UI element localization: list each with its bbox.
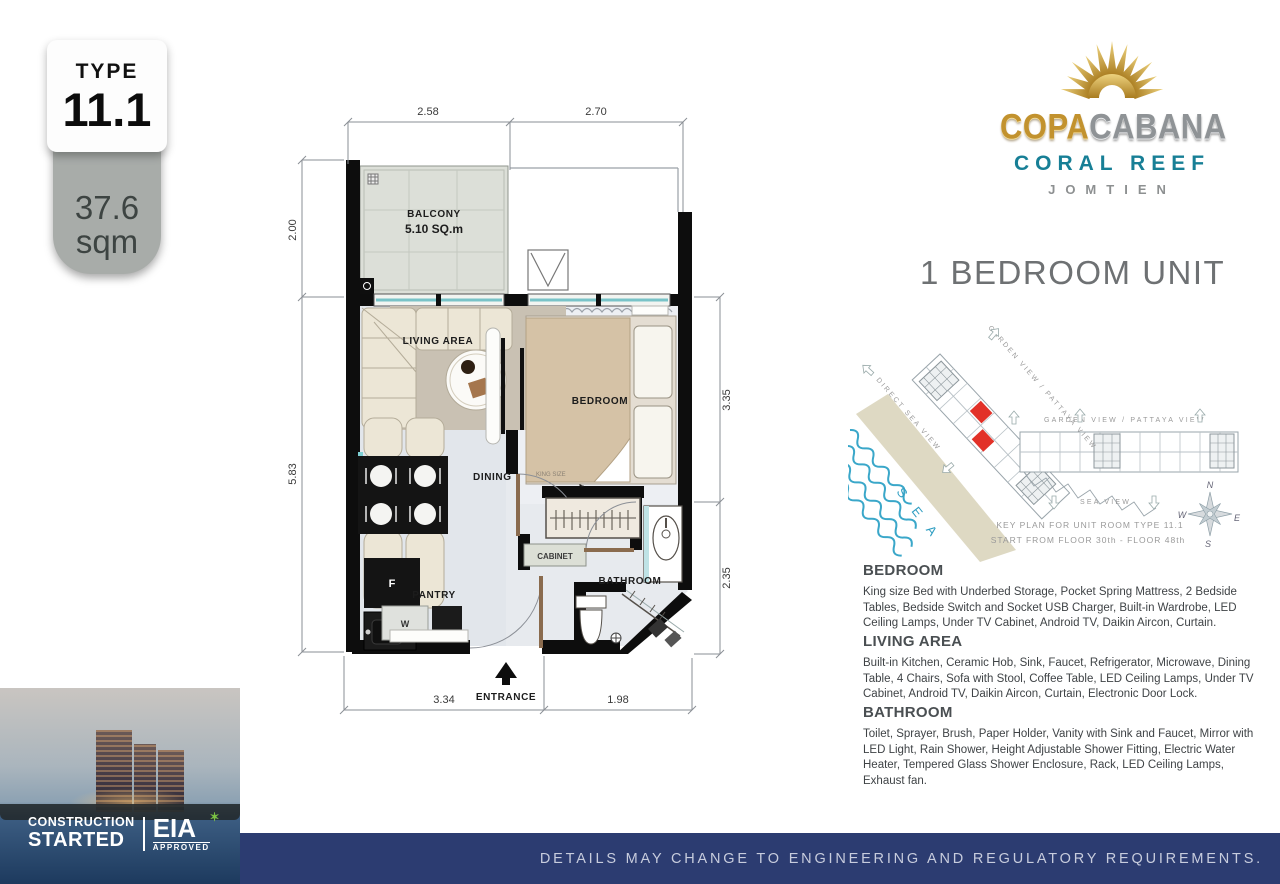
compass-e: E bbox=[1234, 513, 1241, 523]
balcony-area-label: 5.10 SQ.m bbox=[405, 222, 463, 236]
unit-type-card: TYPE 11.1 bbox=[47, 40, 167, 152]
bathroom-label: BATHROOM bbox=[599, 576, 662, 587]
compass-s: S bbox=[1205, 539, 1211, 549]
construction-photo: CONSTRUCTION STARTED EIA✶ APPROVED bbox=[0, 688, 240, 884]
construction-status: CONSTRUCTION STARTED EIA✶ APPROVED bbox=[28, 816, 210, 852]
dim-bottom-left: 3.34 bbox=[433, 694, 454, 706]
living-label: LIVING AREA bbox=[403, 336, 474, 347]
unit-type-value: 11.1 bbox=[63, 86, 152, 133]
page-title: 1 BEDROOM UNIT bbox=[920, 254, 1200, 292]
compass-icon: N E S W bbox=[1178, 480, 1241, 549]
bedroom-door-leaf bbox=[516, 474, 520, 536]
dim-right-bottom: 2.35 bbox=[721, 567, 733, 588]
unit-type-label: TYPE bbox=[76, 60, 139, 84]
brand-logo: COPACABANA CORAL REEF JOMTIEN bbox=[1000, 40, 1224, 197]
sea-view-label: SEA VIEW bbox=[1080, 499, 1131, 506]
drain-grate-icon bbox=[368, 174, 378, 184]
washer-label: W bbox=[401, 619, 410, 629]
floor-drain-icon bbox=[611, 633, 621, 643]
spec-living-body: Built-in Kitchen, Ceramic Hob, Sink, Fau… bbox=[863, 656, 1259, 703]
unit-area-value: 37.6 bbox=[75, 191, 139, 226]
brand-location: JOMTIEN bbox=[1000, 182, 1224, 197]
spec-bathroom: BATHROOM Toilet, Sprayer, Brush, Paper H… bbox=[863, 704, 1259, 789]
dining-label: DINING bbox=[473, 472, 512, 483]
dim-right-top: 3.35 bbox=[721, 389, 733, 410]
counter bbox=[390, 630, 468, 642]
brochure-page: 37.6 sqm TYPE 11.1 bbox=[0, 0, 1280, 884]
balcony-label: BALCONY bbox=[407, 209, 461, 220]
disclaimer-text: DETAILS MAY CHANGE TO ENGINEERING AND RE… bbox=[540, 833, 1263, 884]
entrance-arrow-icon bbox=[495, 662, 517, 678]
floor-plan: BALCONY 5.10 SQ.m bbox=[278, 82, 758, 752]
bathroom-door-leaf bbox=[584, 548, 634, 552]
pantry-label: PANTRY bbox=[412, 590, 456, 601]
entrance-door-leaf bbox=[539, 576, 543, 648]
sunburst-icon bbox=[1000, 40, 1224, 104]
brand-name: COPACABANA bbox=[1000, 109, 1224, 145]
key-plan: S E A bbox=[848, 322, 1252, 562]
cabinet-label: CABINET bbox=[537, 552, 573, 561]
brand-subtitle: CORAL REEF bbox=[1000, 152, 1224, 176]
eia-label: EIA✶ bbox=[153, 816, 210, 841]
fridge-label: F bbox=[389, 578, 396, 590]
balcony: BALCONY 5.10 SQ.m bbox=[360, 166, 508, 294]
ac-ledge bbox=[510, 168, 678, 290]
eia-approved-label: APPROVED bbox=[153, 842, 210, 852]
microwave bbox=[432, 606, 462, 630]
dim-left-top: 2.00 bbox=[287, 219, 299, 240]
brand-name-silver: CABANA bbox=[1089, 106, 1226, 146]
spec-living: LIVING AREA Built-in Kitchen, Ceramic Ho… bbox=[863, 633, 1259, 703]
keyplan-caption-1: KEY PLAN FOR UNIT ROOM TYPE 11.1 bbox=[996, 520, 1183, 530]
status-divider bbox=[143, 817, 145, 851]
entrance-label: ENTRANCE bbox=[476, 692, 536, 703]
bed-size-label: KING SIZE bbox=[536, 472, 566, 478]
condenser-unit bbox=[528, 250, 568, 290]
brand-name-gold: COPA bbox=[1000, 106, 1089, 146]
spec-bathroom-title: BATHROOM bbox=[863, 704, 1259, 721]
dim-bottom-right: 1.98 bbox=[607, 694, 628, 706]
dim-top-left: 2.58 bbox=[417, 106, 438, 118]
balcony-wall-stub bbox=[360, 278, 374, 294]
eia-star-icon: ✶ bbox=[210, 812, 220, 823]
spec-living-title: LIVING AREA bbox=[863, 633, 1259, 650]
started-label: STARTED bbox=[28, 830, 135, 851]
compass-w: W bbox=[1178, 510, 1188, 520]
unit-area-card: 37.6 sqm bbox=[53, 138, 161, 274]
spec-bedroom-title: BEDROOM bbox=[863, 562, 1259, 579]
construction-label: CONSTRUCTION bbox=[28, 816, 135, 830]
unit-type-badge: 37.6 sqm TYPE 11.1 bbox=[47, 40, 167, 276]
unit-area-unit: sqm bbox=[76, 225, 138, 260]
spec-bedroom: BEDROOM King size Bed with Underbed Stor… bbox=[863, 562, 1259, 632]
bedroom-label: BEDROOM bbox=[572, 396, 628, 407]
garden-view-label: GARDEN VIEW / PATTAYA VIEW bbox=[1044, 417, 1206, 424]
compass-n: N bbox=[1207, 480, 1214, 490]
spec-bedroom-body: King size Bed with Underbed Storage, Poc… bbox=[863, 585, 1259, 632]
dim-left-bottom: 5.83 bbox=[287, 463, 299, 484]
spec-bathroom-body: Toilet, Sprayer, Brush, Paper Holder, Va… bbox=[863, 727, 1259, 789]
keyplan-caption-2: START FROM FLOOR 30th - FLOOR 48th bbox=[991, 535, 1186, 545]
dim-top-right: 2.70 bbox=[585, 106, 606, 118]
